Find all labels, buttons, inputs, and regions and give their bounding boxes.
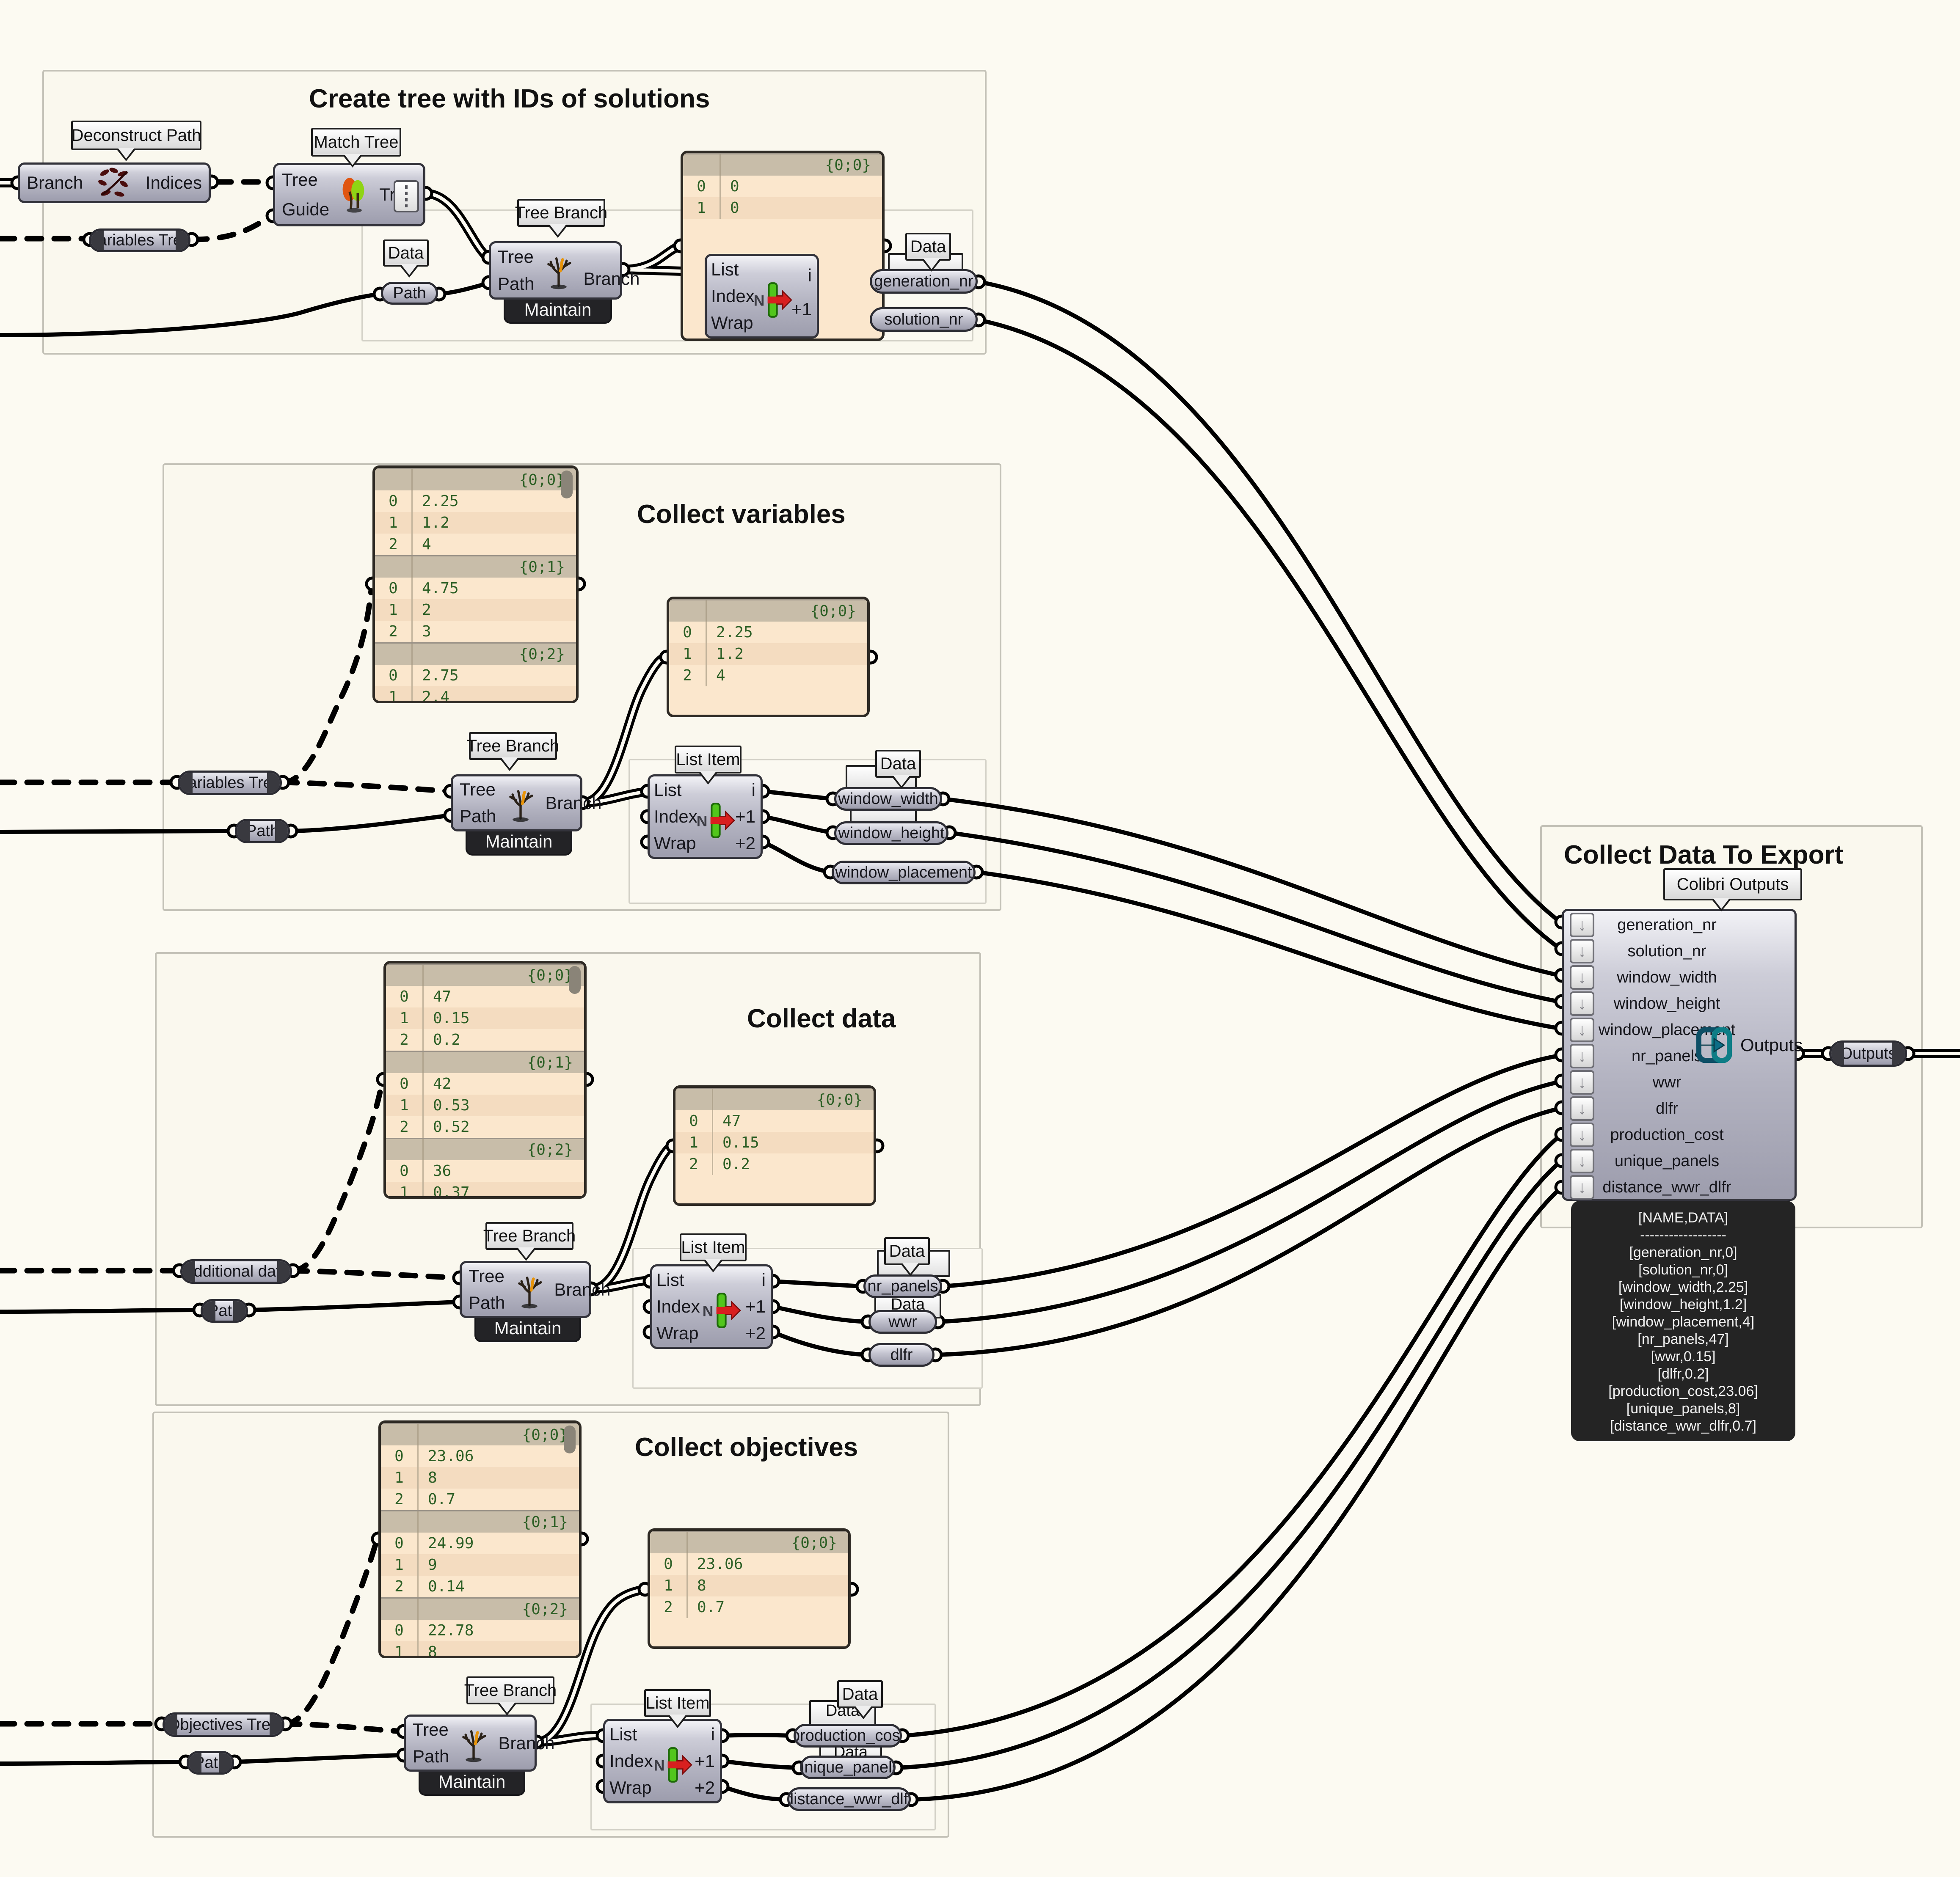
down-arrow-icon[interactable]: ↓ (1570, 1096, 1594, 1121)
path-input-label: Path (413, 1746, 449, 1767)
down-arrow-icon[interactable]: ↓ (1570, 1070, 1594, 1095)
variables-tree-param[interactable]: Variables Tree (178, 771, 282, 795)
group-title-collect-data: Collect data (747, 1004, 896, 1034)
data-tooltip: Data (875, 750, 921, 778)
colibri-input-label: wwr (1594, 1073, 1795, 1092)
export-data-line: [NAME,DATA] (1571, 1209, 1795, 1227)
panel-row: 10.15 (386, 1007, 584, 1029)
window-width-param[interactable]: window_width (834, 787, 942, 811)
list-item-icon: N (753, 280, 793, 320)
panel-row: 02.25 (375, 490, 576, 512)
window-height-param[interactable]: window_height (834, 821, 948, 845)
data-tooltip: Data (383, 239, 429, 267)
export-data-preview-panel: [NAME,DATA]------------------[generation… (1571, 1201, 1795, 1441)
objectives-item-panel[interactable]: {0;0}023.061820.7 (648, 1528, 851, 1649)
panel-row: 19 (381, 1554, 579, 1576)
down-arrow-icon[interactable]: ↓ (1570, 913, 1594, 937)
group-title-collect-variables: Collect variables (637, 499, 846, 529)
path-param[interactable]: Path (201, 1299, 248, 1323)
plus2-output-label: +2 (745, 1323, 766, 1343)
list-input-label: List (656, 1270, 700, 1290)
tree-branch-tooltip: Tree Branch (469, 732, 557, 760)
down-arrow-icon[interactable]: ↓ (1570, 991, 1594, 1016)
colibri-input-row: ↓ unique_panels (1564, 1148, 1795, 1174)
colibri-input-label: window_height (1594, 995, 1795, 1013)
indices-output-label: Indices (146, 173, 202, 193)
export-data-line: [window_placement,4] (1571, 1313, 1795, 1331)
data-item-panel[interactable]: {0;0}04710.1520.2 (673, 1085, 876, 1206)
colibri-input-label: unique_panels (1594, 1152, 1795, 1170)
down-arrow-icon[interactable]: ↓ (1570, 1123, 1594, 1147)
panel-row: {0;0} (669, 599, 867, 622)
production-cost-param[interactable]: production_cost (794, 1724, 902, 1748)
panel-row: 024.99 (381, 1533, 579, 1554)
panel-row: 23 (375, 621, 576, 642)
tree-input-label: Tree (469, 1266, 505, 1286)
list-item-tooltip: List Item (644, 1689, 711, 1717)
colibri-input-label: window_width (1594, 969, 1795, 987)
tree-icon (541, 250, 576, 290)
i-output-label: i (808, 265, 812, 286)
panel-row: {0;2} (381, 1597, 579, 1620)
tree-input-label: Tree (498, 247, 534, 267)
panel-row: 20.7 (650, 1596, 848, 1618)
panel-row: 036 (386, 1160, 584, 1182)
grasshopper-canvas: Create tree with IDs of solutions Collec… (0, 0, 1960, 1877)
group-title-collect-data-to-export: Collect Data To Export (1564, 840, 1843, 870)
panel-row: 047 (675, 1110, 874, 1132)
plus2-output-label: +2 (735, 833, 755, 853)
colibri-outputs-tooltip: Colibri Outputs (1663, 868, 1802, 900)
path-param[interactable]: Path (235, 819, 290, 843)
panel-row: {0;0} (386, 963, 584, 986)
colibri-input-label: production_cost (1594, 1126, 1795, 1144)
export-data-line: [wwr,0.15] (1571, 1348, 1795, 1365)
maintain-footer[interactable]: Maintain (474, 1316, 581, 1342)
tree-branch-component[interactable]: Tree Path Branch (451, 774, 582, 831)
additional-data-panel[interactable]: {0;0}04710.1520.2{0;1}04210.5320.52{0;2}… (383, 961, 587, 1199)
panel-row: 20.14 (381, 1576, 579, 1597)
svg-text:N: N (703, 1303, 714, 1320)
down-arrow-icon[interactable]: ↓ (1570, 939, 1594, 963)
list-item-icon: N (695, 800, 736, 841)
guide-input-label: Guide (282, 199, 329, 220)
index-input-label: Index (656, 1296, 700, 1317)
export-data-line: [nr_panels,47] (1571, 1331, 1795, 1348)
panel-row: {0;1} (381, 1510, 579, 1533)
wrap-input-label: Wrap (654, 833, 697, 853)
panel-scroll-nub[interactable] (569, 966, 581, 994)
down-arrow-icon[interactable]: ↓ (1570, 965, 1594, 990)
deconstruct-path-tooltip: Deconstruct Path (71, 121, 201, 150)
colibri-input-label: generation_nr (1594, 916, 1795, 934)
tree-input-label: Tree (413, 1720, 449, 1740)
match-tree-tooltip: Match Tree (311, 128, 401, 157)
plus1-output-label: +1 (791, 299, 812, 319)
tree-branch-component[interactable]: Tree Path Branch (489, 241, 622, 300)
down-arrow-icon[interactable]: ↓ (1570, 1175, 1594, 1200)
path-input-label: Path (460, 806, 496, 826)
tree-branch-tooltip: Tree Branch (466, 1676, 554, 1704)
panel-row: {0;0} (683, 153, 882, 176)
panel-row: 24 (375, 534, 576, 555)
list-item-icon: N (653, 1745, 693, 1785)
panel-scroll-nub[interactable] (561, 471, 573, 498)
path-input-label: Path (498, 274, 534, 294)
tree-icon (456, 1723, 491, 1763)
colibri-input-row: ↓ generation_nr (1564, 912, 1795, 938)
list-item-tooltip: List Item (675, 746, 742, 773)
colibri-input-row: ↓ solution_nr (1564, 938, 1795, 964)
colibri-input-label: distance_wwr_dlfr (1594, 1178, 1795, 1197)
distance-wwr-dlfr-param[interactable]: distance_wwr_dlfr (787, 1787, 911, 1811)
wrap-input-label: Wrap (711, 313, 755, 333)
panel-row: 18 (650, 1575, 848, 1596)
path-param[interactable]: Path (187, 1751, 234, 1775)
panel-row: {0;0} (381, 1423, 579, 1445)
tree-icon (512, 1270, 547, 1310)
data-tooltip: Data (905, 233, 951, 261)
panel-row: {0;1} (386, 1051, 584, 1073)
panel-row: 18 (381, 1641, 579, 1658)
export-data-line: [distance_wwr_dlfr,0.7] (1571, 1417, 1795, 1435)
panel-row: 10.37 (386, 1182, 584, 1199)
branch-output-label: Branch (498, 1733, 554, 1753)
down-arrow-icon[interactable]: ↓ (1570, 1044, 1594, 1068)
panel-row: {0;0} (375, 468, 576, 490)
index-input-label: Index (711, 286, 755, 306)
panel-row: 11.2 (669, 643, 867, 665)
export-data-line: ------------------ (1571, 1227, 1795, 1244)
outputs-output-label: Outputs (1740, 1035, 1803, 1055)
colibri-input-row: ↓ wwr (1564, 1069, 1795, 1095)
export-data-line: [production_cost,23.06] (1571, 1383, 1795, 1400)
svg-text:N: N (654, 1757, 665, 1774)
export-data-line: [unique_panels,8] (1571, 1400, 1795, 1417)
export-data-line: [generation_nr,0] (1571, 1244, 1795, 1261)
match-tree-icon (336, 174, 372, 215)
i-output-label: i (762, 1270, 766, 1290)
panel-row: 00 (683, 176, 882, 197)
i-output-label: i (752, 780, 755, 800)
panel-row: {0;1} (375, 555, 576, 578)
list-item-component[interactable]: List Index Wrap N i +1 (705, 254, 819, 339)
panel-row: 02.75 (375, 665, 576, 686)
panel-row: 20.7 (381, 1489, 579, 1510)
panel-row: 047 (386, 986, 584, 1007)
dlfr-param[interactable]: dlfr (868, 1343, 935, 1367)
window-placement-param[interactable]: window_placement (832, 861, 976, 884)
solution-nr-param[interactable]: solution_nr (870, 307, 978, 332)
maintain-footer[interactable]: Maintain (504, 297, 612, 324)
objectives-tree-param[interactable]: Objectives Tree (163, 1712, 284, 1737)
objectives-tree-panel[interactable]: {0;0}023.061820.7{0;1}024.991920.14{0;2}… (378, 1420, 582, 1658)
group-title-collect-objectives: Collect objectives (635, 1432, 858, 1462)
i-output-label: i (711, 1724, 715, 1745)
tree-icon (503, 783, 538, 823)
list-input-label: List (609, 1724, 653, 1745)
panel-row: 10.53 (386, 1095, 584, 1116)
plus1-output-label: +1 (695, 1751, 715, 1771)
colibri-input-row: ↓ window_width (1564, 964, 1795, 991)
maintain-footer[interactable]: Maintain (466, 829, 572, 856)
outputs-param[interactable]: Outputs (1829, 1040, 1907, 1067)
export-data-line: [window_width,2.25] (1571, 1279, 1795, 1296)
export-data-line: [dlfr,0.2] (1571, 1365, 1795, 1383)
wrap-input-label: Wrap (656, 1323, 700, 1343)
maintain-footer[interactable]: Maintain (419, 1770, 525, 1796)
svg-text:N: N (754, 292, 765, 309)
panel-row: 04.75 (375, 578, 576, 599)
index-input-label: Index (609, 1751, 653, 1771)
panel-row: 042 (386, 1073, 584, 1095)
colibri-input-row: ↓ distance_wwr_dlfr (1564, 1174, 1795, 1200)
colibri-input-row: ↓ dlfr (1564, 1095, 1795, 1122)
panel-row: 12.4 (375, 686, 576, 703)
down-arrow-icon[interactable]: ↓ (1570, 1018, 1594, 1042)
index-input-label: Index (654, 806, 697, 827)
panel-row: 023.06 (650, 1553, 848, 1575)
panel-row: 20.2 (675, 1153, 874, 1175)
panel-row: 10.15 (675, 1132, 874, 1153)
plus1-output-label: +1 (735, 806, 755, 827)
outputs-icon (1696, 1027, 1732, 1063)
list-item-tooltip: List Item (680, 1233, 747, 1261)
panel-row: 022.78 (381, 1620, 579, 1641)
wrap-input-label: Wrap (609, 1778, 653, 1798)
colibri-input-row: ↓ production_cost (1564, 1122, 1795, 1148)
panel-row: 11.2 (375, 512, 576, 534)
tree-branch-tooltip: Tree Branch (485, 1222, 573, 1250)
path-input-label: Path (469, 1293, 505, 1313)
list-input-label: List (711, 259, 755, 280)
unique-panels-param[interactable]: unique_panels (800, 1756, 896, 1779)
colibri-output: Outputs (1696, 1027, 1803, 1063)
export-data-line: [window_height,1.2] (1571, 1296, 1795, 1313)
deconstruct-path-component[interactable]: Branch Indices (18, 162, 211, 203)
plus2-output-label: +2 (695, 1778, 715, 1798)
panel-row: 18 (381, 1467, 579, 1489)
export-data-line: [solution_nr,0] (1571, 1261, 1795, 1279)
list-input-label: List (654, 780, 697, 800)
group-title-create-tree: Create tree with IDs of solutions (309, 84, 710, 114)
data-tooltip: Data (884, 1237, 930, 1265)
svg-text:N: N (697, 813, 708, 830)
panel-scroll-nub[interactable] (564, 1426, 576, 1453)
panel-row: {0;2} (386, 1138, 584, 1160)
colibri-input-label: dlfr (1594, 1100, 1795, 1118)
branch-input-label: Branch (27, 173, 83, 193)
panel-row: 12 (375, 599, 576, 621)
panel-row: 24 (669, 665, 867, 686)
list-item-component[interactable]: List Index Wrap N i +1 +2 (603, 1719, 722, 1803)
variables-tree-panel[interactable]: {0;0}02.2511.224{0;1}04.751223{0;2}02.75… (372, 465, 579, 703)
zipper-icon[interactable] (394, 180, 419, 212)
branch-output-label: Branch (554, 1280, 610, 1300)
panel-row: 02.25 (669, 622, 867, 643)
panel-row: {0;2} (375, 642, 576, 665)
tree-input-label: Tree (282, 170, 329, 190)
colibri-input-label: solution_nr (1594, 942, 1795, 961)
data-tooltip: Data (837, 1680, 883, 1708)
panel-row: 20.52 (386, 1116, 584, 1138)
colibri-input-row: ↓ window_height (1564, 991, 1795, 1017)
branch-output-label: Branch (583, 269, 640, 289)
variables-item-panel[interactable]: {0;0}02.2511.224 (667, 597, 870, 717)
variables-tree-param[interactable]: Variables Tree (89, 228, 190, 252)
plus1-output-label: +1 (745, 1296, 766, 1317)
panel-row: 023.06 (381, 1445, 579, 1467)
wwr-param[interactable]: wwr (868, 1310, 937, 1334)
down-arrow-icon[interactable]: ↓ (1570, 1149, 1594, 1173)
panel-row: {0;0} (650, 1531, 848, 1553)
additional-data-param[interactable]: Additional data (180, 1259, 292, 1284)
list-item-icon: N (701, 1290, 742, 1331)
panel-row: 10 (683, 197, 882, 219)
tree-input-label: Tree (460, 779, 496, 800)
tree-branch-tooltip: Tree Branch (517, 199, 605, 227)
panel-row: 20.2 (386, 1029, 584, 1051)
branch-output-label: Branch (545, 793, 601, 813)
panel-row: {0;0} (675, 1088, 874, 1110)
